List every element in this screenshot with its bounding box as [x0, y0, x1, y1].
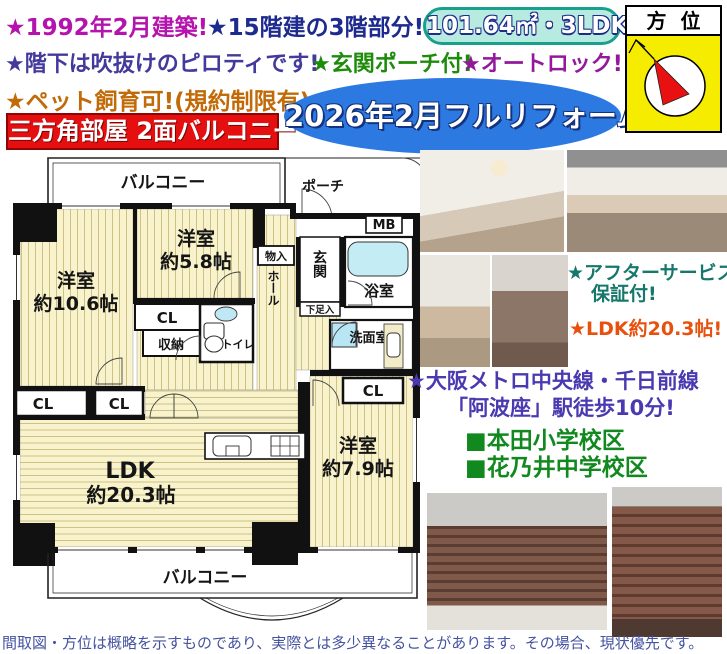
- hall-label: ホール: [266, 270, 280, 306]
- autolock-text: ★オートロック!: [461, 46, 623, 78]
- bay-window-curve: [200, 598, 343, 620]
- built-year-text: ★1992年2月建築!: [5, 8, 208, 42]
- svg-text:下足入: 下足入: [306, 305, 335, 316]
- photo-vanity: [420, 255, 490, 367]
- disclaimer-text: 間取図・方位は概略を示すものであり、実際とは多少異なることがあります。その場合、…: [2, 632, 703, 653]
- balcony-bottom-label: バルコニー: [163, 568, 248, 588]
- photo-building-side: [612, 487, 722, 637]
- svg-text:トイレ: トイレ: [222, 338, 255, 351]
- washroom: 洗面室: [330, 320, 413, 370]
- svg-text:MB: MB: [373, 218, 396, 233]
- compass-title: 方位: [627, 7, 720, 36]
- svg-text:収納: 収納: [158, 337, 184, 353]
- photo-bathroom: [492, 255, 568, 367]
- kitchen-counter: [205, 433, 305, 459]
- piloti-text: ★階下は吹抜けのピロティです!: [5, 46, 319, 78]
- bath-room: 浴室: [345, 237, 413, 307]
- floor-plan: CL 収納 トイレ 物入 玄関 下足入 MB: [0, 150, 430, 635]
- storage-box: 収納: [143, 330, 200, 356]
- corner-room-banner: 三方角部屋 2面バルコニー: [6, 113, 279, 150]
- photo-living-room: [420, 150, 564, 252]
- closet-mid: CL: [135, 304, 200, 330]
- renovation-badge: 2026年2月フルリフォーム済: [284, 78, 621, 154]
- svg-text:CL: CL: [33, 395, 54, 413]
- toilet-room: トイレ: [200, 304, 255, 362]
- toilet-basin-icon: [215, 307, 237, 321]
- closet-left-1: CL: [16, 390, 87, 416]
- room1-size: 約10.6帖: [34, 292, 119, 315]
- svg-text:CL: CL: [109, 395, 130, 413]
- ldk-size: 約20.3帖: [86, 483, 175, 507]
- room2-size: 約5.8帖: [160, 250, 232, 273]
- svg-text:物入: 物入: [265, 249, 287, 263]
- entrance-porch-text: ★玄関ポーチ付!: [311, 46, 473, 78]
- room3-name: 洋室: [339, 434, 377, 457]
- monoire-box: 物入: [258, 246, 294, 265]
- closet-left-2: CL: [95, 390, 143, 416]
- room2-name: 洋室: [177, 227, 215, 250]
- svg-text:CL: CL: [363, 382, 384, 400]
- room3-size: 約7.9帖: [322, 457, 394, 480]
- meter-box: MB: [366, 216, 402, 233]
- porch-label: ポーチ: [302, 178, 344, 195]
- washer-icon: [387, 333, 400, 357]
- svg-text:玄関: 玄関: [311, 249, 327, 279]
- compass-box: 方位: [625, 5, 722, 133]
- floor-position-text: ★15階建の3階部分!: [207, 8, 424, 42]
- after-service-text: ★アフターサービス 保証付!: [567, 263, 727, 305]
- entrance-room: 玄関 下足入: [300, 237, 340, 316]
- north-arrow-icon: [627, 36, 720, 131]
- svg-text:CL: CL: [157, 309, 178, 327]
- ldk-name: LDK: [105, 459, 155, 484]
- closet-right: CL: [343, 378, 403, 403]
- bathtub-icon: [348, 242, 408, 276]
- svg-text:洗面室: 洗面室: [349, 330, 388, 346]
- photo-kitchen: [567, 150, 727, 252]
- station-access-text: ★大阪メトロ中央線・千日前線 「阿波座」駅徒歩10分!: [407, 368, 699, 422]
- area-layout-badge: 101.64㎡・3LDK: [423, 7, 621, 45]
- photo-building-front: [427, 493, 607, 630]
- svg-text:浴室: 浴室: [364, 282, 394, 300]
- school-district-text: ■本田小学校区 ■花乃井中学校区: [465, 428, 648, 482]
- listing-flyer: ★1992年2月建築! ★15階建の3階部分! 101.64㎡・3LDK ★階下…: [0, 0, 727, 654]
- pet-allowed-text: ★ペット飼育可!(規約制限有): [5, 82, 310, 116]
- room1-name: 洋室: [57, 269, 95, 292]
- ldk-size-note: ★LDK約20.3帖!: [569, 314, 722, 341]
- balcony-top-label: バルコニー: [121, 173, 206, 193]
